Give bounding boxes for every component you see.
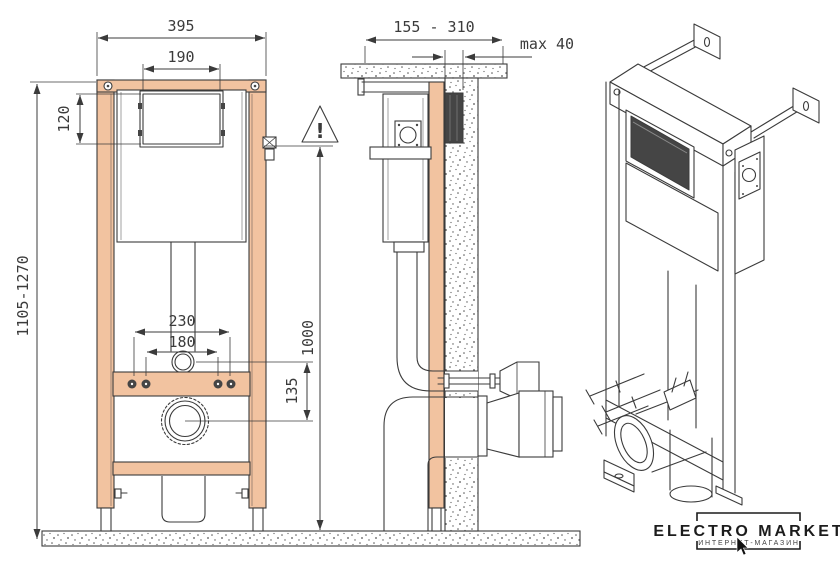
logo-subtitle: ИНТЕРНЕТ-МАГАЗИН (698, 540, 800, 547)
wall-section (445, 78, 478, 531)
installation-drawing: 395 190 120 1105-1270 230 180 135 (0, 0, 840, 567)
fixing-crossbar (113, 372, 250, 396)
warning-mark: ! (315, 119, 324, 143)
dim-fixing-spacing-inner: 180 (168, 333, 195, 351)
brand-logo: ELECTRO MARKET ИНТЕРНЕТ-МАГАЗИН (653, 513, 840, 555)
isometric-view (586, 24, 819, 505)
lower-crossbar (113, 462, 250, 522)
finish-panel (445, 93, 463, 143)
cistern-side (370, 94, 431, 252)
cistern-front (117, 90, 246, 242)
dim-plate-window-width: 190 (167, 48, 194, 66)
floor-section (42, 531, 580, 546)
drawing-svg: 395 190 120 1105-1270 230 180 135 (0, 0, 840, 567)
dim-outlet-drop: 135 (283, 377, 301, 404)
front-view (97, 80, 276, 531)
warning-triangle-icon: ! (302, 106, 338, 143)
flush-bend-holder (263, 137, 276, 160)
side-view (341, 64, 562, 531)
ceiling-section (341, 64, 507, 78)
dim-frame-width: 395 (167, 17, 194, 35)
dim-wall-depth-range: 155 - 310 (393, 18, 474, 36)
dim-plate-window-height: 120 (55, 105, 73, 132)
iso-pipes (607, 271, 712, 502)
dim-fixing-spacing-outer: 230 (168, 312, 195, 330)
dim-frame-height-range: 1105-1270 (14, 255, 32, 336)
logo-title: ELECTRO MARKET (653, 523, 840, 540)
flush-pipe-front (171, 242, 195, 373)
logo-frame-top (697, 513, 800, 521)
dim-flush-bend-height: 1000 (299, 320, 317, 356)
dim-finish-max-thickness: max 40 (520, 35, 574, 53)
